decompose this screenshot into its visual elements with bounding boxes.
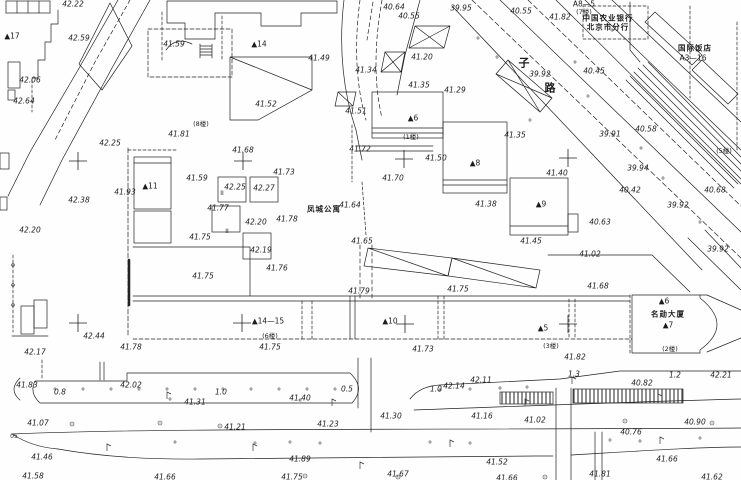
elevation-label: 41.75 [192,272,213,280]
elevation-label: 41.65 [351,237,372,245]
elevation-label: 41.52 [486,458,507,466]
elevation-label: 40.42 [619,186,640,194]
floor-count-tag: (8楼) [193,121,209,128]
elevation-label: 42.02 [120,381,141,389]
elevation-label: 39.92 [707,245,728,253]
elevation-label: 42.27 [253,184,274,192]
misc-mark: 05 [10,434,18,440]
survey-map: 42.2242.5941.5942.0642.6440.6440.5539.95… [0,0,741,480]
elevation-label: 40.55 [510,7,531,15]
building-number-label: ▲14—15 [252,317,284,325]
elevation-label: 41.50 [425,154,446,162]
building-number-label: ▲10 [382,317,397,325]
elevation-label: 41.89 [289,455,310,463]
elevation-label: 41.02 [579,250,600,258]
elevation-label: 39.92 [529,70,550,78]
elevation-label: 42.59 [68,34,89,42]
road-width-label: 1.0 [430,385,442,393]
place-name-label: 国际饭店 [678,44,712,52]
elevation-label: 41.02 [524,416,545,424]
elevation-label: 41.68 [587,282,608,290]
elevation-label: 39.94 [627,164,648,172]
elevation-label: 41.81 [168,130,189,138]
elevation-label: 41.59 [163,40,184,48]
road-width-label: 0.8 [54,388,66,396]
elevation-label: 41.29 [444,86,465,94]
elevation-label: 42.06 [19,76,40,84]
elevation-label: 40.64 [383,3,404,11]
elevation-label: 41.73 [412,345,433,353]
annotation-layer: 42.2242.5941.5942.0642.6440.6440.5539.95… [0,0,741,480]
elevation-label: 42.20 [245,218,266,226]
elevation-label: 42.25 [99,139,120,147]
elevation-label: 41.40 [289,394,310,402]
elevation-label: 42.14 [443,382,464,390]
building-number-label: ▲8 [470,159,481,167]
elevation-label: 41.34 [355,66,376,74]
elevation-label: 41.75 [281,473,302,480]
elevation-label: 42.19 [250,246,271,254]
elevation-label: 41.67 [387,470,408,478]
floor-count-tag: (2楼) [662,346,678,353]
elevation-label: 41.78 [276,215,297,223]
elevation-label: 41.75 [189,233,210,241]
building-number-label: ▲17 [4,32,19,40]
road-name-char: 子 [519,58,530,69]
elevation-label: 41.73 [273,168,294,176]
elevation-label: 41.66 [496,474,517,480]
elevation-label: 41.23 [317,420,338,428]
elevation-label: 41.30 [380,412,401,420]
elevation-label: 41.68 [232,146,253,154]
elevation-label: 41.52 [255,100,276,108]
elevation-label: 39.92 [667,201,688,209]
elevation-label: 40.45 [583,67,604,75]
elevation-label: 41.38 [475,200,496,208]
floor-count-tag: (6楼) [262,333,278,340]
elevation-label: 41.46 [31,453,52,461]
building-number-label: ▲6 [408,114,419,122]
elevation-label: 40.55 [398,12,419,20]
road-width-label: 1.3 [568,370,580,378]
elevation-label: 40.82 [631,379,652,387]
place-name-label: 北京市分行 [587,23,630,31]
elevation-label: 41.16 [471,412,492,420]
elevation-label: 41.49 [308,54,329,62]
elevation-label: 41.75 [259,343,280,351]
elevation-label: 42.20 [19,226,40,234]
elevation-label: 41.58 [22,472,43,480]
elevation-label: 41.79 [348,287,369,295]
elevation-label: 41.82 [564,353,585,361]
elevation-label: 41.35 [408,81,429,89]
elevation-label: 41.77 [207,204,228,212]
elevation-label: 42.17 [24,348,45,356]
elevation-label: 39.91 [599,130,620,138]
elevation-label: 40.68 [704,186,725,194]
elevation-label: 41.78 [120,343,141,351]
elevation-label: 41.45 [520,237,541,245]
road-width-label: 1.0 [215,388,227,396]
floor-count-tag: (5楼) [716,148,732,155]
elevation-label: 41.59 [186,174,207,182]
elevation-label: 41.40 [546,169,567,177]
elevation-label: 41.70 [382,174,403,182]
building-number-label: A3—16 [680,54,707,62]
place-name-label: 凤城公寓 [307,205,341,213]
elevation-label: 41.81 [589,470,610,478]
elevation-label: 40.63 [589,218,610,226]
elevation-label: 40.90 [684,418,705,426]
place-name-label: 中国农业银行 [583,14,634,22]
elevation-label: 41.82 [549,13,570,21]
building-number-label: ▲5 [538,324,549,332]
floor-count-tag: (1楼) [403,134,419,141]
elevation-label: 41.31 [184,398,205,406]
elevation-label: 40.58 [635,125,656,133]
building-number-label: ▲9 [536,200,547,208]
elevation-label: 42.25 [224,183,245,191]
elevation-label: 42.11 [470,376,491,384]
elevation-label: 41.75 [447,285,468,293]
elevation-label: 42.38 [68,196,89,204]
elevation-label: 41.66 [154,473,175,480]
elevation-label: 41.93 [114,188,135,196]
elevation-label: 41.76 [266,264,287,272]
elevation-label: 41.64 [339,201,360,209]
building-number-label: ▲14 [251,40,266,48]
elevation-label: 41.35 [504,131,525,139]
elevation-label: 39.95 [450,4,471,12]
misc-mark: II [220,191,224,197]
elevation-label: 41.07 [27,419,48,427]
building-number-label: ▲11 [142,182,157,190]
building-number-label: A8—5 [573,0,595,8]
elevation-label: 41.51 [345,107,366,115]
elevation-label: 40.76 [620,428,641,436]
elevation-label: 41.62 [701,473,722,480]
elevation-label: 41.83 [16,381,37,389]
elevation-label: 42.22 [62,0,83,8]
road-width-label: 0.5 [341,385,353,393]
elevation-label: 42.64 [13,97,34,105]
road-width-label: 1.2 [669,371,681,379]
building-number-label: ▲7 [663,321,674,329]
elevation-label: 41.20 [411,53,432,61]
misc-mark: II [225,229,229,235]
building-number-label: ▲6 [659,297,670,305]
elevation-label: 41.21 [224,423,245,431]
floor-count-tag: (3楼) [543,343,559,350]
elevation-label: 42.21 [710,371,731,379]
road-name-char: 路 [545,83,556,94]
elevation-label: 42.44 [83,332,104,340]
place-name-label: 名勋大厦 [651,310,685,318]
elevation-label: 41.66 [656,455,677,463]
elevation-label: 41.72 [349,145,370,153]
